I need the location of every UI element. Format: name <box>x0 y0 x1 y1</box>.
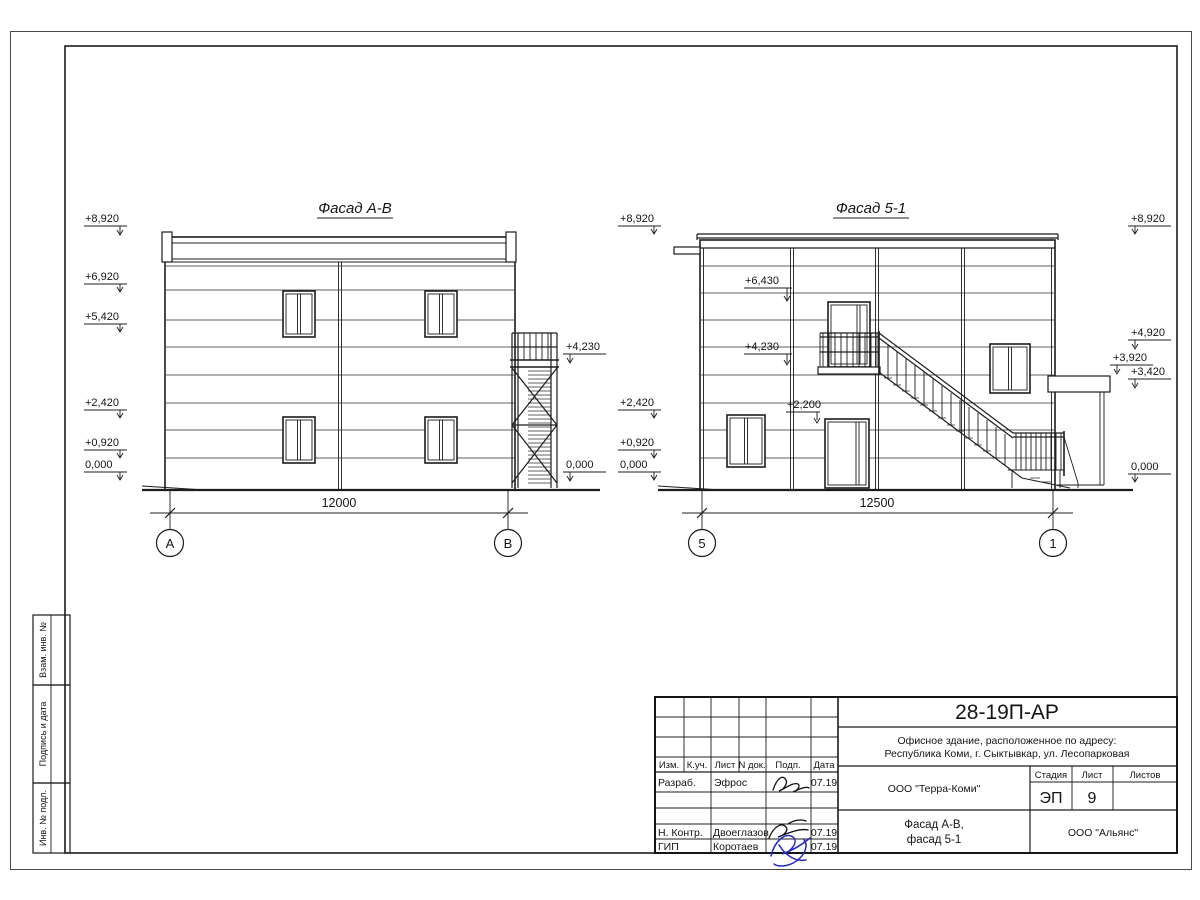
project-address-1: Офисное здание, расположенное по адресу: <box>898 735 1117 747</box>
balcony <box>818 331 880 374</box>
svg-text:0,000: 0,000 <box>620 459 648 471</box>
date-nkontr: 07.19 <box>811 827 837 839</box>
axis-label-b: В <box>504 536 513 551</box>
dimension-label: 12500 <box>860 496 895 510</box>
client-org: ООО "Альянс" <box>1068 827 1138 839</box>
col-data: Дата <box>813 760 835 771</box>
sheet-label: Лист <box>1082 770 1103 781</box>
svg-text:+4,230: +4,230 <box>745 341 779 353</box>
svg-text:+0,920: +0,920 <box>620 437 654 449</box>
window <box>425 291 457 337</box>
window <box>283 417 315 463</box>
stamp-label-inv: Инв. № подл. <box>38 790 48 846</box>
doc-title-2: фасад 5-1 <box>907 834 962 846</box>
role-gip: ГИП <box>658 841 679 853</box>
design-org: ООО "Терра-Коми" <box>888 783 981 795</box>
svg-text:+2,200: +2,200 <box>787 399 821 411</box>
svg-text:+6,920: +6,920 <box>85 271 119 283</box>
facade-ab-cap-left <box>162 232 172 262</box>
svg-text:+8,920: +8,920 <box>1131 213 1165 225</box>
col-izm: Изм. <box>659 760 679 771</box>
name-nkontr: Двоеглазов <box>713 827 769 839</box>
window <box>425 417 457 463</box>
dimension-label: 12000 <box>322 496 357 510</box>
svg-text:+0,920: +0,920 <box>85 437 119 449</box>
svg-text:0,000: 0,000 <box>85 459 113 471</box>
role-razrab: Разраб. <box>658 777 696 789</box>
door-lower <box>825 419 869 488</box>
stage-value: ЭП <box>1040 790 1063 807</box>
sheets-label: Листов <box>1130 770 1161 781</box>
project-code: 28-19П-АР <box>955 701 1059 724</box>
window <box>727 415 765 467</box>
role-nkontr: Н. Контр. <box>658 827 703 839</box>
col-list: Лист <box>715 760 736 771</box>
doc-title-1: Фасад А-В, <box>904 819 964 831</box>
stamp-label-podpis: Подпись и дата <box>38 702 48 767</box>
project-address-2: Республика Коми, г. Сыктывкар, ул. Лесоп… <box>885 748 1130 760</box>
facade-ab-title: Фасад А-В <box>318 200 392 217</box>
col-ndok: N док. <box>738 760 765 771</box>
svg-text:+2,420: +2,420 <box>620 397 654 409</box>
svg-text:+8,920: +8,920 <box>620 213 654 225</box>
svg-text:0,000: 0,000 <box>1131 461 1159 473</box>
col-podp: Подп. <box>775 760 800 771</box>
col-kuch: К.уч. <box>687 760 708 771</box>
svg-text:+3,920: +3,920 <box>1113 352 1147 364</box>
sheet-background <box>0 0 1200 900</box>
date-razrab: 07.19 <box>811 777 837 789</box>
window <box>283 291 315 337</box>
drawing-sheet: Взам. инв. № Подпись и дата Инв. № подл.… <box>0 0 1200 900</box>
facade-51-pipe <box>674 247 700 254</box>
facade-ab-cap-right <box>506 232 516 262</box>
svg-text:0,000: 0,000 <box>566 459 594 471</box>
stamp-label-vzam: Взам. инв. № <box>38 622 48 678</box>
stage-label: Стадия <box>1035 770 1067 781</box>
svg-text:+6,430: +6,430 <box>745 275 779 287</box>
date-gip: 07.19 <box>811 841 837 853</box>
axis-label-1: 1 <box>1049 536 1056 551</box>
svg-text:+4,230: +4,230 <box>566 341 600 353</box>
sheet-number: 9 <box>1088 790 1097 807</box>
door-upper <box>828 302 870 367</box>
svg-text:+5,420: +5,420 <box>85 311 119 323</box>
name-gip: Коротаев <box>713 841 759 853</box>
window <box>990 344 1030 393</box>
facade-51-title: Фасад 5-1 <box>836 200 906 217</box>
axis-label-a: А <box>166 536 175 551</box>
axis-label-5: 5 <box>698 536 705 551</box>
name-razrab: Эфрос <box>714 777 747 789</box>
svg-text:+8,920: +8,920 <box>85 213 119 225</box>
svg-text:+4,920: +4,920 <box>1131 327 1165 339</box>
svg-text:+3,420: +3,420 <box>1131 366 1165 378</box>
svg-text:+2,420: +2,420 <box>85 397 119 409</box>
